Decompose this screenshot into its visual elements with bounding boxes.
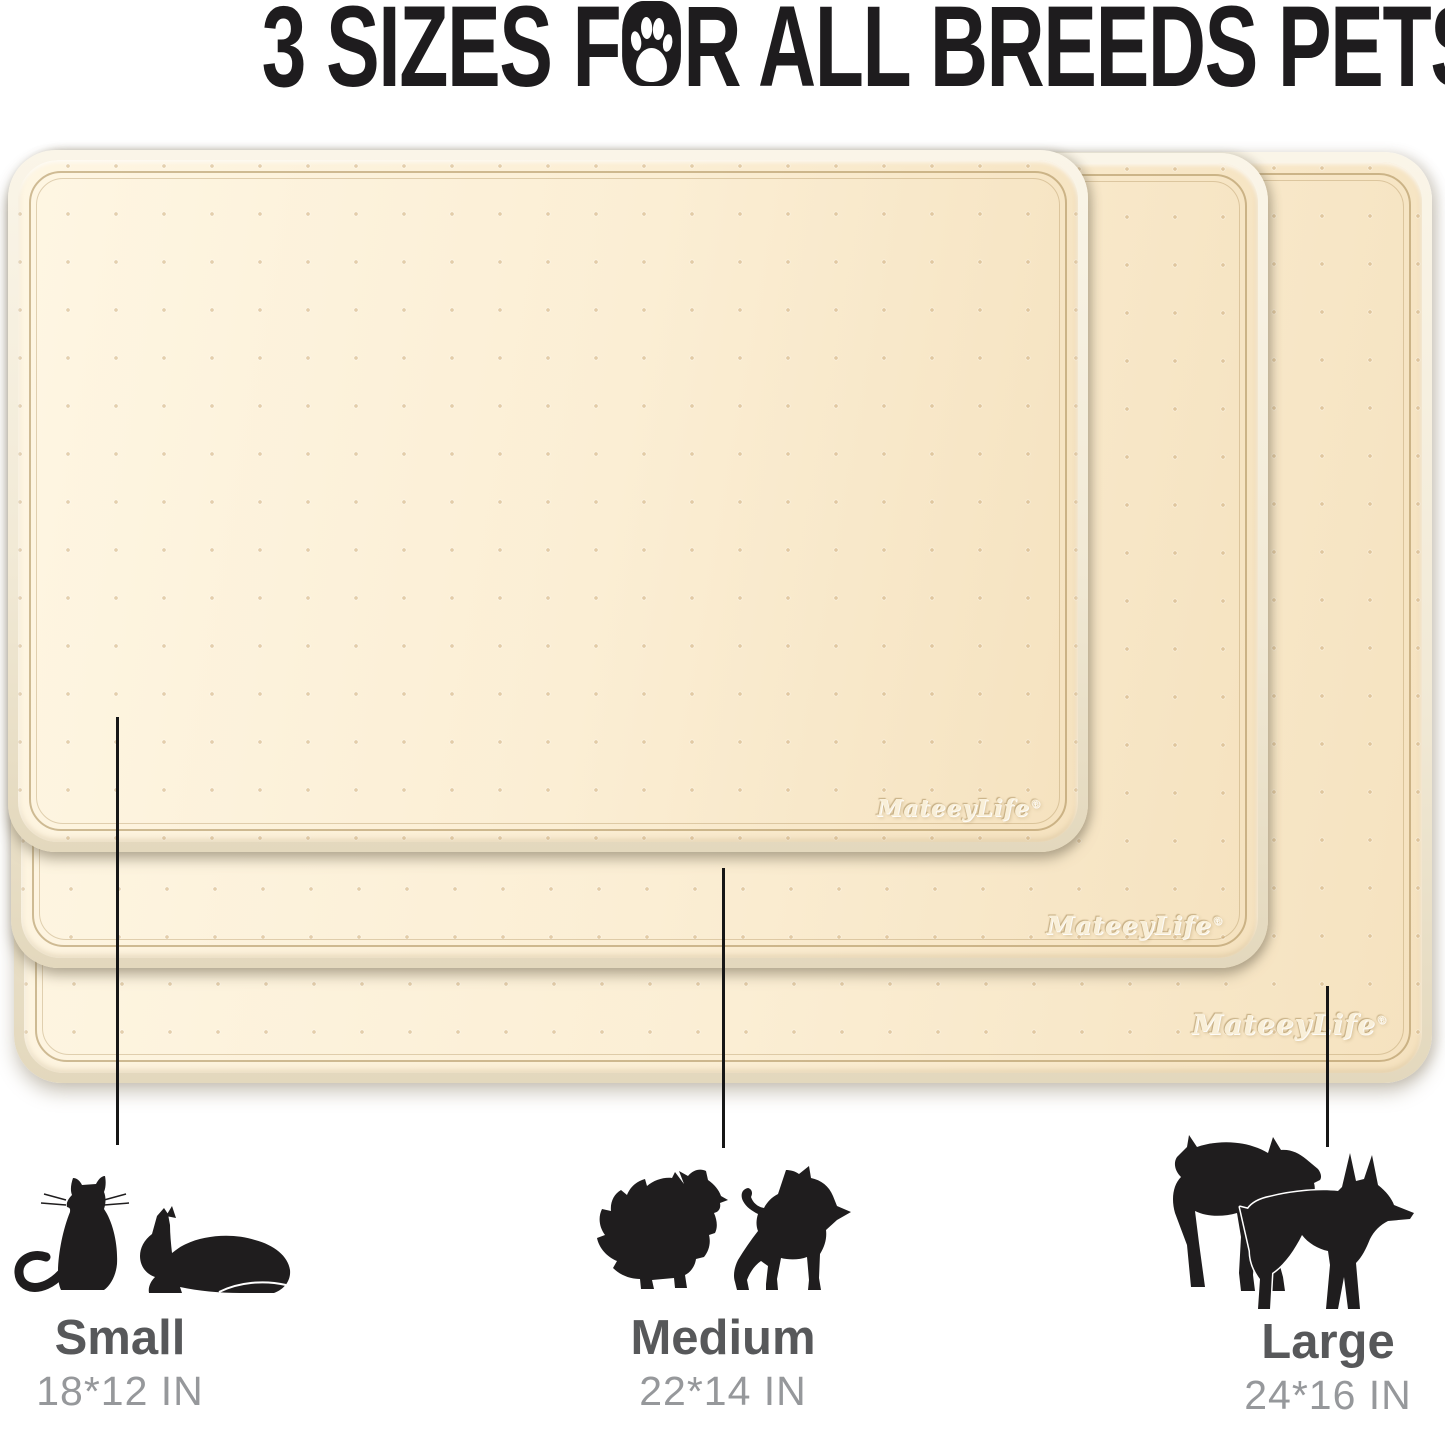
- title-after-paw: R ALL BREEDS PETS: [683, 0, 1445, 111]
- title-before-paw: 3 SIZES F: [262, 0, 621, 111]
- mat-small: MateeyLife®: [8, 150, 1088, 852]
- mat-small-border-inner: [36, 178, 1060, 824]
- page-title-text: 3 SIZES F R ALL BREEDS PETS: [262, 0, 1445, 105]
- size-label-small: Small: [0, 1312, 250, 1366]
- paw-icon: [622, 1, 681, 86]
- cats-silhouette-icon: [14, 1172, 294, 1304]
- size-group-small: Small 18*12 IN: [0, 1312, 250, 1417]
- size-label-large: Large: [1198, 1316, 1445, 1370]
- connector-line-small: [116, 717, 119, 1145]
- small-dogs-silhouette-icon: [578, 1158, 868, 1303]
- large-dogs-silhouette-icon: [1160, 1115, 1442, 1315]
- brand-logo-small: MateeyLife®: [877, 795, 1042, 822]
- product-infographic: 3 SIZES F R ALL BREEDS PETS MateeyLife® …: [0, 0, 1445, 1431]
- size-group-large: Large 24*16 IN: [1198, 1316, 1445, 1421]
- brand-logo-medium: MateeyLife®: [1047, 911, 1225, 940]
- size-dimensions-small: 18*12 IN: [0, 1366, 250, 1417]
- size-label-medium: Medium: [593, 1312, 853, 1366]
- size-group-medium: Medium 22*14 IN: [593, 1312, 853, 1417]
- size-dimensions-large: 24*16 IN: [1198, 1370, 1445, 1421]
- size-dimensions-medium: 22*14 IN: [593, 1366, 853, 1417]
- brand-logo-large: MateeyLife®: [1192, 1008, 1388, 1041]
- page-title: 3 SIZES F R ALL BREEDS PETS: [0, 0, 1445, 105]
- connector-line-medium: [722, 868, 725, 1148]
